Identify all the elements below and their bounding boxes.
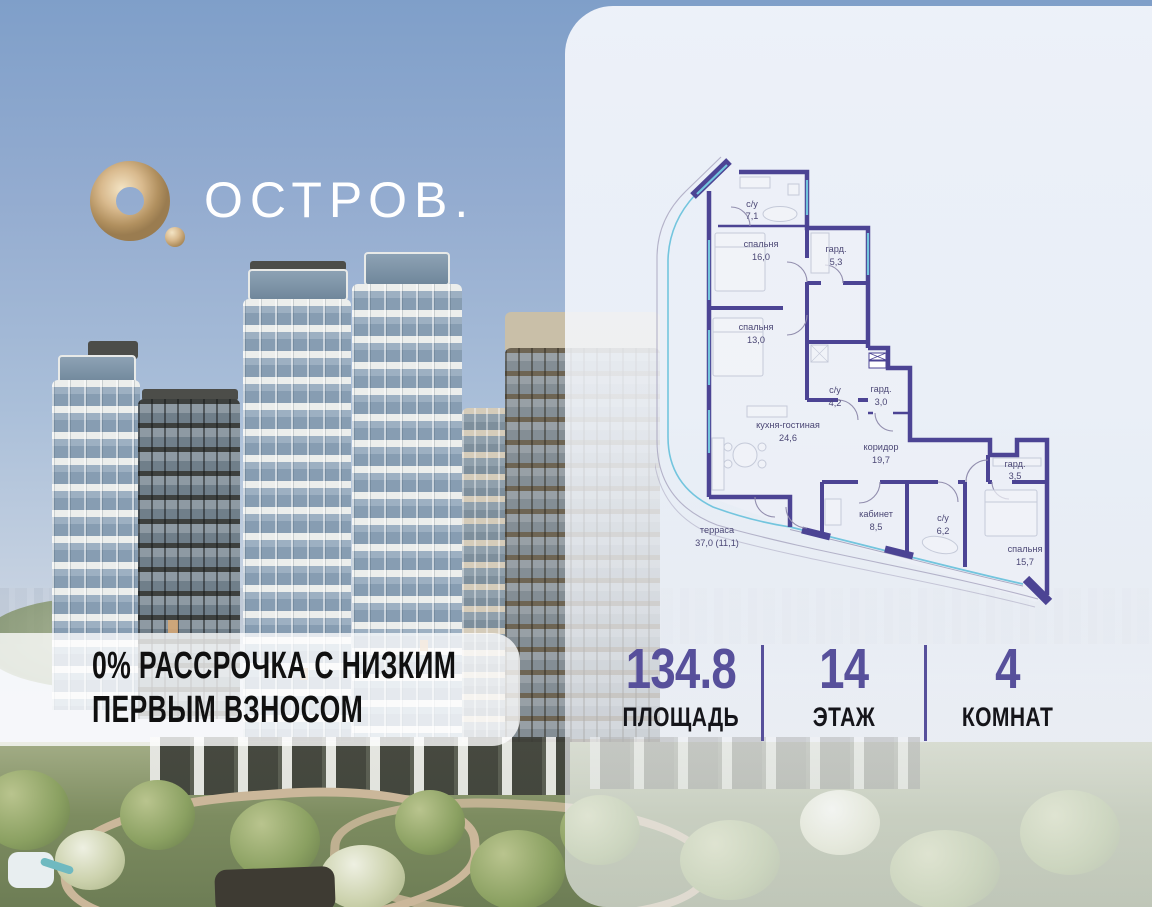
- room-area: 3,0: [875, 397, 888, 407]
- brand-logo-text: ОСТРОВ.: [204, 171, 475, 229]
- apartment-stats: 134.8 ПЛОЩАДЬ 14 ЭТАЖ 4 КОМНАТ: [600, 640, 1088, 746]
- stat-floor: 14 ЭТАЖ: [764, 640, 925, 746]
- room-name: с/у: [937, 513, 949, 523]
- room-name: с/у: [829, 385, 841, 395]
- room-name: коридор: [863, 442, 898, 452]
- room-name: терраса: [700, 525, 735, 535]
- room-name: гард.: [825, 244, 846, 254]
- room-name: спальня: [744, 239, 779, 249]
- room-area: 13,0: [747, 335, 765, 345]
- lit-window: [168, 620, 178, 633]
- room-name: спальня: [1008, 544, 1043, 554]
- stat-rooms: 4 КОМНАТ: [927, 640, 1088, 746]
- room-area: 5,3: [830, 257, 843, 267]
- stat-area-label: ПЛОЩАДЬ: [622, 702, 739, 732]
- room-name: спальня: [739, 322, 774, 332]
- room-name: гард.: [870, 384, 891, 394]
- ad-poster: ОСТРОВ. 0% РАССРОЧКА С НИЗКИМ ПЕРВЫМ ВЗН…: [0, 0, 1152, 907]
- gold-dot-icon: [165, 227, 185, 247]
- stat-rooms-value: 4: [995, 640, 1020, 698]
- tree-blob: [395, 790, 465, 855]
- tree-blob: [470, 830, 565, 907]
- room-name: кухня-гостиная: [756, 420, 820, 430]
- promo-line-2: ПЕРВЫМ ВЗНОСОМ: [92, 688, 363, 732]
- room-area: 6,2: [937, 526, 950, 536]
- stat-floor-label: ЭТАЖ: [813, 702, 875, 732]
- stat-floor-value: 14: [819, 640, 868, 698]
- penthouse-glass-3: [364, 252, 450, 286]
- promo-line-1: 0% РАССРОЧКА С НИЗКИМ: [92, 644, 456, 688]
- floorplan: с/у 7,1 спальня 16,0 гард. 5,3 спальня 1…: [655, 155, 1065, 615]
- room-area: 7,1: [746, 211, 759, 221]
- room-area: 4,2: [829, 398, 842, 408]
- promo-ribbon: 0% РАССРОЧКА С НИЗКИМ ПЕРВЫМ ВЗНОСОМ: [0, 633, 520, 746]
- gold-ring-icon: [103, 174, 157, 228]
- room-area: 24,6: [779, 433, 797, 443]
- room-area: 15,7: [1016, 557, 1034, 567]
- stat-area-value: 134.8: [625, 640, 735, 698]
- tree-blob: [120, 780, 195, 850]
- flower-bush: [55, 830, 125, 890]
- penthouse-glass-2: [248, 269, 348, 301]
- pavilion-roof: [214, 866, 335, 907]
- room-name: с/у: [746, 199, 758, 209]
- room-name: гард.: [1004, 459, 1025, 469]
- promo-text: 0% РАССРОЧКА С НИЗКИМ ПЕРВЫМ ВЗНОСОМ: [92, 644, 612, 732]
- room-area: 37,0 (11,1): [695, 538, 739, 548]
- stat-area: 134.8 ПЛОЩАДЬ: [600, 640, 761, 746]
- room-area: 8,5: [870, 522, 883, 532]
- vent-shafts: [869, 353, 886, 368]
- room-area: 19,7: [872, 455, 890, 465]
- playground-structure: [8, 852, 54, 888]
- stat-rooms-label: КОМНАТ: [962, 702, 1053, 732]
- room-name: кабинет: [859, 509, 894, 519]
- brand-logo-mark: [86, 156, 190, 252]
- room-area: 16,0: [752, 252, 770, 262]
- room-area: 3,5: [1009, 471, 1022, 481]
